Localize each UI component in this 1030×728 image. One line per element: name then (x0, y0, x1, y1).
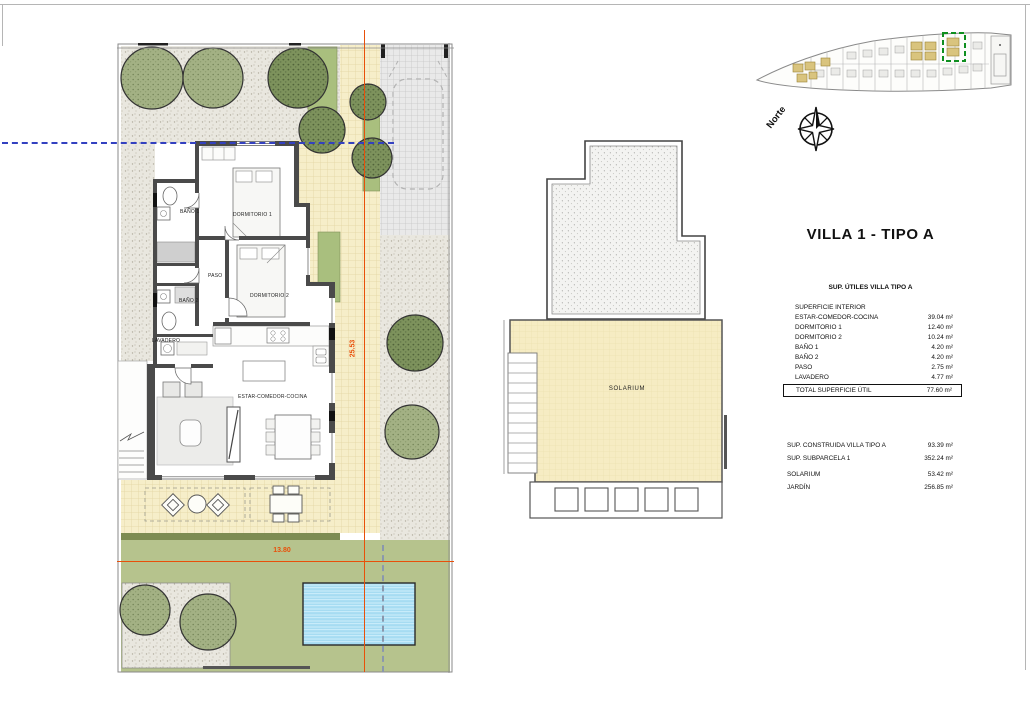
dimension-width: 13.80 (262, 547, 302, 554)
dimension-line-horizontal (117, 561, 454, 562)
table-row: SUP. SUBPARCELA 1352.24 m² (783, 452, 962, 465)
solarium-plan-drawing (495, 139, 740, 529)
site-plan-drawing (117, 43, 454, 673)
table-row: BAÑO 24.20 m² (783, 353, 962, 363)
table-row: SUP. CONSTRUIDA VILLA TIPO A93.39 m² (783, 439, 962, 452)
table-row: SOLARIUM53.42 m² (783, 468, 962, 481)
axis-line-horizontal (2, 142, 394, 144)
page-border-left (2, 4, 3, 46)
page-title: VILLA 1 - TIPO A (768, 226, 973, 243)
axis-line-vertical (382, 545, 384, 672)
areas-table: SUPERFICIE INTERIOR ESTAR-COMEDOR-COCINA… (783, 303, 962, 397)
room-label-dormitorio2: DORMITORIO 2 (250, 293, 289, 299)
table-row: BAÑO 14.20 m² (783, 343, 962, 353)
table-row: ESTAR-COMEDOR-COCINA39.04 m² (783, 313, 962, 323)
table-row: DORMITORIO 112.40 m² (783, 323, 962, 333)
room-label-paso: PASO (208, 273, 222, 279)
room-label-bano2: BAÑO 2 (179, 298, 199, 304)
areas-table-title: SUP. ÚTILES VILLA TIPO A (768, 284, 973, 291)
page-border-right (1025, 4, 1026, 670)
page-border-top (0, 4, 1030, 5)
summary-table: SUP. CONSTRUIDA VILLA TIPO A93.39 m² SUP… (783, 439, 962, 494)
north-compass-icon (784, 104, 848, 156)
table-row: PASO2.75 m² (783, 363, 962, 373)
table-total-row: TOTAL SUPERFICIE ÚTIL77.60 m² (783, 384, 962, 397)
plan-sheet: 25.53 13.80 BAÑO 1 DORMITORIO 1 PASO BAÑ… (0, 0, 1030, 728)
room-label-lavadero: LAVADERO (152, 338, 180, 344)
dimension-line-vertical (364, 30, 365, 672)
table-row: JARDÍN256.85 m² (783, 481, 962, 494)
table-section-header: SUPERFICIE INTERIOR (783, 303, 962, 313)
room-label-dormitorio1: DORMITORIO 1 (233, 212, 272, 218)
dimension-height: 25.53 (349, 340, 356, 358)
room-label-bano1: BAÑO 1 (180, 209, 200, 215)
location-map (753, 28, 1015, 98)
room-label-solarium: SOLARIUM (595, 386, 659, 392)
table-row: LAVADERO4.77 m² (783, 373, 962, 383)
table-row: DORMITORIO 210.24 m² (783, 333, 962, 343)
room-label-estar: ESTAR-COMEDOR-COCINA (238, 394, 307, 400)
